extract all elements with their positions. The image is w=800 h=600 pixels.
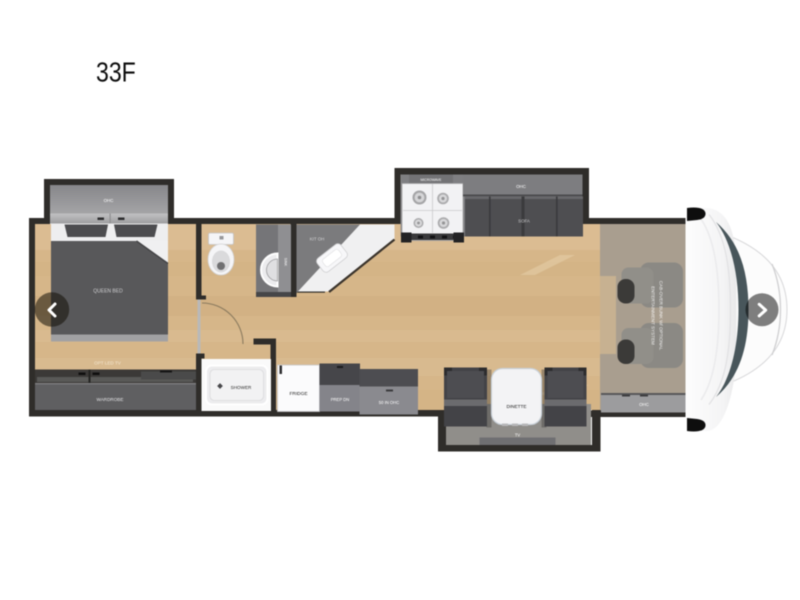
- svg-text:CAB-OVER BUNK W/ OPTIONAL: CAB-OVER BUNK W/ OPTIONAL: [658, 281, 663, 351]
- svg-text:FRIDGE: FRIDGE: [289, 391, 307, 397]
- svg-text:DINETTE: DINETTE: [506, 404, 526, 409]
- svg-text:OHC: OHC: [639, 402, 649, 407]
- svg-text:SOFA: SOFA: [518, 219, 530, 224]
- svg-text:33F: 33F: [96, 58, 136, 88]
- svg-text:QUEEN BED: QUEEN BED: [93, 289, 123, 295]
- svg-text:PREP DN: PREP DN: [331, 397, 350, 402]
- svg-text:WARDROBE: WARDROBE: [97, 397, 124, 402]
- svg-text:ENTERTAINMENT SYSTEM: ENTERTAINMENT SYSTEM: [650, 286, 655, 345]
- svg-text:OPT LED TV: OPT LED TV: [94, 361, 122, 366]
- svg-text:MICROWAVE: MICROWAVE: [421, 178, 443, 182]
- svg-text:KIT OH: KIT OH: [310, 237, 325, 242]
- svg-text:50 IN OHC: 50 IN OHC: [379, 400, 399, 405]
- svg-text:SHOWER: SHOWER: [231, 385, 252, 390]
- svg-text:SINK: SINK: [284, 258, 288, 267]
- svg-text:TV: TV: [515, 433, 521, 438]
- svg-text:OHC: OHC: [516, 184, 526, 189]
- svg-text:OHC: OHC: [104, 198, 114, 203]
